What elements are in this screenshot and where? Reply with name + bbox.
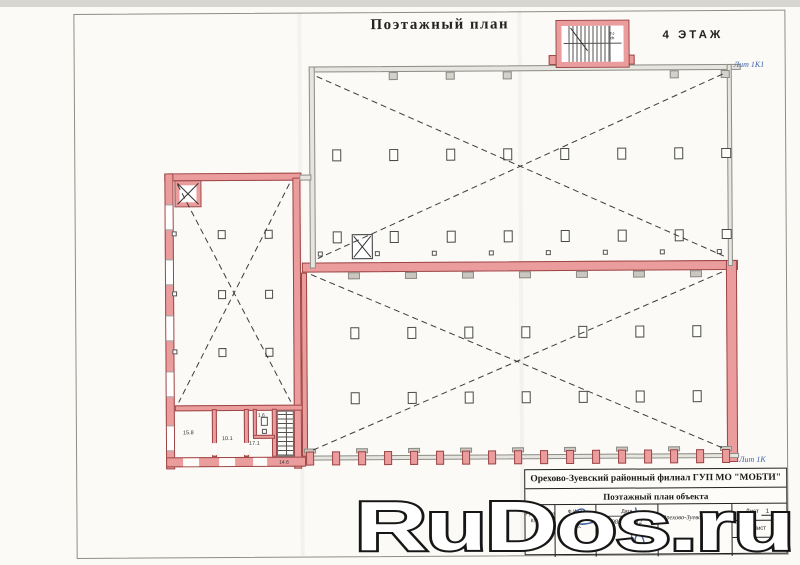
room-area-label: 14.6 bbox=[279, 460, 289, 466]
litera-label-bottom: Лит 1К bbox=[739, 455, 766, 464]
room-area-label: 10.1 bbox=[222, 436, 233, 442]
organization-name: Орехово-Зуевский районный филиал ГУП МО … bbox=[525, 469, 786, 490]
room-area-label: 17.1 bbox=[249, 441, 260, 447]
watermark: RuDos.ru bbox=[353, 488, 800, 565]
litera-label-top: Лит 1К1 bbox=[734, 60, 765, 69]
room-area-label: 15.8 bbox=[183, 430, 194, 436]
scanned-floor-plan-page: { "header": { "title": "Поэтажный план",… bbox=[0, 0, 800, 565]
drawing-sheet: Поэтажный план 4 ЭТАЖ 2.6 15.8 10.1 17.1… bbox=[0, 0, 800, 565]
room-area-label: 1.6 bbox=[258, 413, 265, 419]
watermark-text: RuDos.ru bbox=[355, 488, 793, 565]
